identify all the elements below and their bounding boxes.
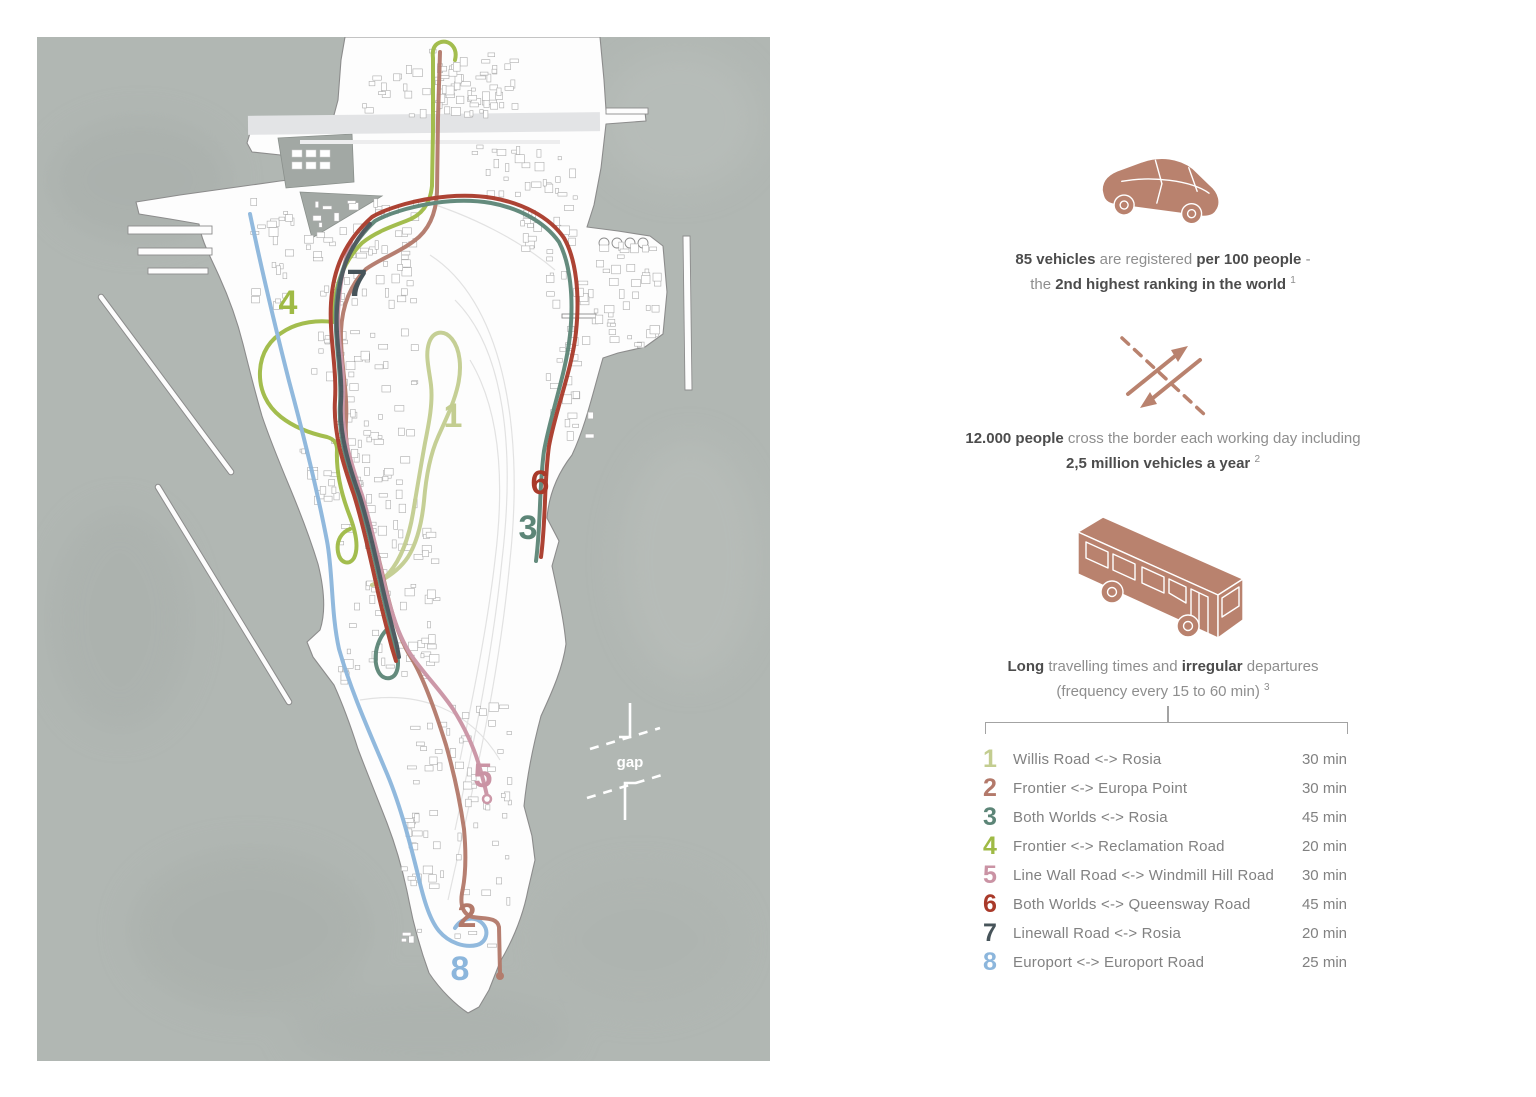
- building-footprint: [371, 333, 375, 337]
- route-name: Both Worlds <-> Rosia: [1013, 809, 1283, 826]
- legend-row-4: 4 Frontier <-> Reclamation Road 20 min: [983, 832, 1347, 861]
- building-footprint: [314, 251, 322, 257]
- building-footprint: [411, 584, 416, 587]
- building-footprint: [430, 655, 440, 663]
- building-footprint: [441, 871, 444, 878]
- building-footprint: [497, 88, 501, 96]
- building-footprint: [386, 665, 394, 668]
- building-footprint: [480, 110, 483, 114]
- building-footprint: [367, 437, 371, 442]
- building-footprint: [369, 81, 375, 85]
- building-footprint: [279, 217, 285, 221]
- building-footprint: [430, 757, 437, 764]
- building-footprint: [455, 762, 463, 769]
- building-footprint: [347, 649, 350, 654]
- building-footprint: [312, 369, 317, 375]
- building-footprint: [357, 253, 367, 258]
- building-footprint: [521, 221, 525, 226]
- building-footprint: [349, 372, 354, 377]
- building-footprint: [351, 331, 360, 334]
- building-footprint: [376, 276, 384, 284]
- building-footprint: [609, 330, 616, 335]
- building-footprint: [573, 391, 579, 398]
- route-legend: 1 Willis Road <-> Rosia 30 min 2 Frontie…: [983, 745, 1347, 977]
- car-icon: [1096, 148, 1230, 244]
- building-footprint: [365, 467, 370, 475]
- building-footprint: [423, 551, 429, 557]
- building-footprint: [562, 271, 567, 279]
- car-stat-footnote: 1: [1290, 275, 1296, 286]
- building-footprint: [610, 278, 619, 285]
- building-footprint: [610, 337, 619, 343]
- building-footprint: [317, 232, 325, 237]
- building-footprint: [543, 180, 546, 187]
- building-footprint: [401, 867, 407, 871]
- route-name: Frontier <-> Europa Point: [1013, 780, 1283, 797]
- building-footprint: [350, 384, 358, 391]
- route-number: 3: [983, 803, 1013, 832]
- building-footprint: [412, 831, 422, 836]
- building-footprint: [445, 107, 450, 114]
- building-footprint: [421, 654, 424, 658]
- building-footprint: [323, 206, 332, 210]
- building-footprint: [482, 890, 491, 896]
- border-stat-text: 12.000 people cross the border each work…: [943, 428, 1383, 474]
- building-footprint: [505, 856, 509, 859]
- building-footprint: [332, 487, 336, 494]
- building-footprint: [480, 709, 487, 716]
- building-footprint: [258, 225, 266, 228]
- building-footprint: [488, 944, 497, 947]
- building-footprint: [315, 201, 318, 207]
- building-footprint: [383, 476, 388, 481]
- building-footprint: [374, 439, 383, 444]
- building-footprint: [596, 260, 603, 267]
- building-footprint: [486, 805, 490, 810]
- building-footprint: [370, 595, 375, 603]
- building-footprint: [398, 428, 404, 435]
- building-footprint: [379, 414, 383, 419]
- bus-stat-bold-1: Long: [1008, 658, 1045, 675]
- building-footprint: [373, 76, 382, 80]
- route-2-endpoint: [496, 972, 504, 980]
- route-name: Willis Road <-> Rosia: [1013, 751, 1283, 768]
- bus-stat-text: Long travelling times and irregular depa…: [963, 656, 1363, 702]
- legend-row-2: 2 Frontier <-> Europa Point 30 min: [983, 774, 1347, 803]
- building-footprint: [267, 221, 276, 227]
- legend-row-6: 6 Both Worlds <-> Queensway Road 45 min: [983, 890, 1347, 919]
- building-footprint: [405, 588, 414, 596]
- building-footprint: [409, 936, 414, 943]
- building-footprint: [428, 644, 437, 649]
- building-footprint: [515, 155, 524, 163]
- building-footprint: [397, 265, 402, 271]
- route-number: 6: [983, 890, 1013, 919]
- building-footprint: [510, 59, 518, 63]
- building-footprint: [558, 193, 567, 196]
- route-number: 7: [983, 919, 1013, 948]
- route-duration: 30 min: [1283, 867, 1347, 884]
- building-footprint: [492, 69, 497, 73]
- building-footprint: [286, 215, 293, 222]
- building-footprint: [319, 349, 323, 353]
- building-footprint: [405, 819, 414, 823]
- building-footprint: [379, 494, 387, 498]
- building-footprint: [415, 814, 419, 822]
- building-footprint: [460, 738, 464, 743]
- building-footprint: [653, 273, 661, 281]
- building-footprint: [489, 703, 499, 711]
- route-number: 2: [983, 774, 1013, 803]
- building-footprint: [365, 108, 373, 114]
- building-footprint: [650, 326, 660, 334]
- bus-stat-footnote: 3: [1264, 682, 1270, 693]
- building-footprint: [399, 504, 406, 512]
- building-footprint: [382, 246, 387, 254]
- building-footprint: [378, 436, 382, 439]
- building-footprint: [619, 290, 624, 299]
- building-footprint: [394, 520, 398, 529]
- building-footprint: [429, 635, 436, 644]
- building-footprint: [313, 216, 321, 221]
- building-footprint: [512, 104, 518, 110]
- building-footprint: [411, 381, 417, 384]
- building-footprint: [620, 249, 629, 253]
- building-footprint: [382, 386, 391, 392]
- building-footprint: [631, 244, 639, 253]
- building-footprint: [537, 150, 541, 158]
- building-footprint: [489, 720, 496, 726]
- building-footprint: [401, 938, 406, 942]
- building-footprint: [364, 421, 368, 426]
- border-stat-bold-2: 2,5 million vehicles a year: [1066, 455, 1250, 472]
- car-stat-text: 85 vehicles are registered per 100 peopl…: [963, 249, 1363, 295]
- building-footprint: [396, 490, 402, 499]
- building-footprint: [503, 813, 507, 818]
- building-footprint: [269, 228, 278, 237]
- building-footprint: [329, 480, 335, 486]
- building-footprint: [348, 439, 355, 445]
- building-footprint: [435, 750, 442, 754]
- building-footprint: [385, 288, 388, 297]
- route-name: Both Worlds <-> Queensway Road: [1013, 896, 1283, 913]
- building-footprint: [324, 339, 330, 343]
- building-footprint: [468, 96, 476, 101]
- building-footprint: [594, 309, 598, 313]
- building-footprint: [472, 151, 478, 154]
- bus-stat-text-1: travelling times and: [1044, 658, 1182, 675]
- building-footprint: [402, 255, 409, 259]
- bus-stat-bold-2: irregular: [1182, 658, 1243, 675]
- building-footprint: [386, 500, 391, 508]
- border-stat-bold-1: 12.000 people: [965, 430, 1063, 447]
- building-footprint: [389, 300, 394, 308]
- building-footprint: [505, 86, 513, 90]
- building-footprint: [546, 275, 554, 282]
- building-footprint: [381, 83, 386, 91]
- building-footprint: [375, 477, 383, 482]
- building-footprint: [492, 149, 497, 152]
- building-footprint: [346, 362, 355, 370]
- border-crossing-icon: [1108, 330, 1220, 422]
- building-footprint: [461, 82, 470, 86]
- building-footprint: [413, 69, 422, 77]
- building-footprint: [402, 671, 407, 676]
- map-label-route-6: 6: [531, 464, 550, 502]
- building-footprint: [367, 494, 372, 503]
- car-stat-text-3: the: [1030, 276, 1055, 293]
- building-footprint: [466, 799, 472, 807]
- building-footprint: [252, 296, 260, 303]
- building-footprint: [463, 782, 472, 789]
- building-footprint: [604, 306, 614, 313]
- building-footprint: [564, 205, 573, 210]
- building-footprint: [556, 177, 561, 183]
- building-footprint: [407, 430, 415, 436]
- building-footprint: [496, 878, 501, 884]
- building-footprint: [643, 245, 649, 252]
- building-footprint: [589, 289, 593, 298]
- building-footprint: [430, 810, 438, 815]
- infographic-page: 1 2 3 4 5 6 7 8 gap: [0, 0, 1536, 1097]
- map-label-route-1: 1: [444, 397, 463, 435]
- building-footprint: [403, 228, 412, 234]
- route-duration: 30 min: [1283, 780, 1347, 797]
- building-footprint: [612, 265, 621, 274]
- car-stat-bold-2: per 100 people: [1196, 251, 1301, 268]
- building-footprint: [382, 658, 385, 666]
- building-footprint: [407, 766, 416, 769]
- route-name: Frontier <-> Reclamation Road: [1013, 838, 1283, 855]
- building-footprint: [431, 559, 439, 564]
- legend-row-8: 8 Europort <-> Europort Road 25 min: [983, 948, 1347, 977]
- route-name: Line Wall Road <-> Windmill Hill Road: [1013, 867, 1283, 884]
- building-footprint: [324, 471, 332, 476]
- building-footprint: [582, 337, 590, 345]
- building-footprint: [375, 365, 383, 369]
- building-footprint: [553, 300, 560, 308]
- building-footprint: [477, 145, 483, 149]
- bus-stat-text-2: departures: [1243, 658, 1319, 675]
- building-footprint: [379, 344, 388, 349]
- legend-row-7: 7 Linewall Road <-> Rosia 20 min: [983, 919, 1347, 948]
- building-footprint: [567, 432, 573, 441]
- building-footprint: [522, 246, 530, 252]
- building-footprint: [486, 169, 490, 175]
- building-footprint: [547, 257, 553, 261]
- building-footprint: [425, 766, 433, 772]
- building-footprint: [494, 159, 499, 168]
- building-footprint: [401, 289, 407, 295]
- building-footprint: [554, 217, 560, 225]
- building-footprint: [392, 540, 396, 548]
- building-footprint: [355, 603, 360, 610]
- building-footprint: [402, 268, 412, 276]
- building-footprint: [523, 234, 528, 243]
- building-footprint: [411, 298, 417, 303]
- building-footprint: [456, 855, 461, 860]
- route-name: Linewall Road <-> Rosia: [1013, 925, 1283, 942]
- building-footprint: [470, 111, 473, 117]
- building-footprint: [557, 359, 563, 363]
- building-footprint: [438, 763, 442, 770]
- building-footprint: [446, 86, 454, 95]
- building-footprint: [373, 630, 379, 636]
- route-number: 1: [983, 745, 1013, 774]
- legend-row-1: 1 Willis Road <-> Rosia 30 min: [983, 745, 1347, 774]
- building-footprint: [395, 406, 404, 412]
- map-label-route-7: 7: [346, 263, 367, 305]
- building-footprint: [528, 236, 536, 241]
- building-footprint: [361, 351, 369, 360]
- building-footprint: [384, 468, 393, 475]
- route-duration: 45 min: [1283, 896, 1347, 913]
- gibraltar-map: 1 2 3 4 5 6 7 8 gap: [37, 37, 770, 1061]
- route-duration: 45 min: [1283, 809, 1347, 826]
- building-footprint: [600, 245, 609, 251]
- building-footprint: [420, 109, 426, 118]
- building-footprint: [396, 231, 402, 237]
- building-footprint: [319, 223, 322, 228]
- route-number: 5: [983, 861, 1013, 890]
- building-footprint: [409, 114, 414, 117]
- building-footprint: [623, 302, 629, 310]
- route-duration: 25 min: [1283, 954, 1347, 971]
- building-footprint: [603, 269, 610, 273]
- building-footprint: [272, 262, 276, 267]
- building-footprint: [558, 157, 561, 160]
- building-footprint: [394, 74, 400, 81]
- building-footprint: [505, 64, 511, 70]
- building-footprint: [652, 305, 659, 312]
- building-footprint: [375, 241, 378, 250]
- legend-connector-tick: [1167, 706, 1169, 722]
- building-footprint: [499, 705, 508, 709]
- building-footprint: [378, 526, 387, 535]
- map-label-route-5: 5: [474, 757, 493, 795]
- building-footprint: [588, 412, 594, 419]
- car-stat-bold-1: 85 vehicles: [1015, 251, 1095, 268]
- building-footprint: [319, 332, 324, 341]
- building-footprint: [423, 88, 430, 95]
- building-footprint: [324, 238, 333, 242]
- building-footprint: [568, 413, 577, 418]
- building-footprint: [340, 228, 346, 235]
- building-footprint: [522, 163, 530, 168]
- building-footprint: [628, 336, 632, 339]
- building-footprint: [528, 224, 534, 228]
- building-footprint: [474, 823, 478, 828]
- building-footprint: [546, 374, 550, 381]
- building-footprint: [525, 182, 530, 190]
- building-footprint: [532, 182, 541, 188]
- car-stat-text-2: -: [1301, 251, 1310, 268]
- building-footprint: [406, 65, 411, 73]
- building-footprint: [650, 247, 657, 251]
- route-number: 4: [983, 832, 1013, 861]
- building-footprint: [402, 932, 411, 936]
- building-footprint: [498, 750, 503, 754]
- building-footprint: [562, 395, 571, 404]
- building-footprint: [491, 103, 498, 109]
- building-footprint: [339, 667, 343, 672]
- building-footprint: [363, 104, 367, 108]
- building-footprint: [348, 201, 356, 204]
- building-footprint: [400, 602, 406, 610]
- building-footprint: [633, 292, 639, 299]
- building-footprint: [596, 315, 603, 324]
- building-footprint: [585, 434, 594, 438]
- building-footprint: [460, 58, 467, 67]
- map-label-route-8: 8: [451, 950, 470, 988]
- building-footprint: [251, 198, 257, 205]
- legend-row-3: 3 Both Worlds <-> Rosia 45 min: [983, 803, 1347, 832]
- building-footprint: [411, 726, 420, 729]
- building-footprint: [447, 729, 450, 736]
- building-footprint: [507, 897, 510, 905]
- building-footprint: [426, 532, 436, 537]
- building-footprint: [411, 345, 418, 351]
- building-footprint: [403, 84, 407, 91]
- building-footprint: [453, 63, 460, 72]
- car-stat-bold-3: 2nd highest ranking in the world: [1055, 276, 1286, 293]
- building-footprint: [283, 273, 287, 279]
- building-footprint: [427, 622, 430, 628]
- building-footprint: [405, 91, 412, 98]
- building-footprint: [252, 289, 261, 296]
- building-footprint: [480, 72, 488, 75]
- building-footprint: [414, 780, 420, 784]
- building-footprint: [433, 842, 440, 849]
- building-footprint: [351, 409, 356, 417]
- building-footprint: [573, 196, 577, 199]
- building-footprint: [456, 96, 464, 103]
- building-footprint: [351, 449, 357, 457]
- building-footprint: [565, 419, 570, 427]
- building-footprint: [611, 323, 616, 326]
- building-footprint: [578, 281, 588, 285]
- route-name: Europort <-> Europort Road: [1013, 954, 1283, 971]
- building-footprint: [285, 250, 293, 256]
- building-footprint: [408, 822, 415, 828]
- building-footprint: [488, 53, 495, 57]
- route-duration: 20 min: [1283, 838, 1347, 855]
- building-footprint: [470, 103, 478, 107]
- building-footprint: [305, 235, 314, 243]
- building-footprint: [284, 211, 288, 214]
- building-footprint: [484, 111, 488, 118]
- building-footprint: [505, 164, 509, 172]
- building-footprint: [349, 624, 356, 628]
- building-footprint: [414, 554, 423, 559]
- building-footprint: [421, 747, 427, 751]
- building-footprint: [276, 266, 280, 275]
- building-footprint: [517, 146, 520, 154]
- building-footprint: [379, 92, 386, 95]
- building-footprint: [409, 642, 418, 651]
- building-footprint: [401, 457, 410, 463]
- building-footprint: [407, 281, 413, 286]
- car-stat-text-1: are registered: [1095, 251, 1196, 268]
- building-footprint: [482, 92, 489, 101]
- building-footprint: [569, 238, 576, 245]
- building-footprint: [341, 293, 345, 299]
- building-footprint: [324, 286, 329, 292]
- building-footprint: [482, 60, 490, 63]
- map-label-route-3: 3: [519, 509, 538, 547]
- building-footprint: [334, 213, 339, 221]
- building-footprint: [429, 875, 437, 882]
